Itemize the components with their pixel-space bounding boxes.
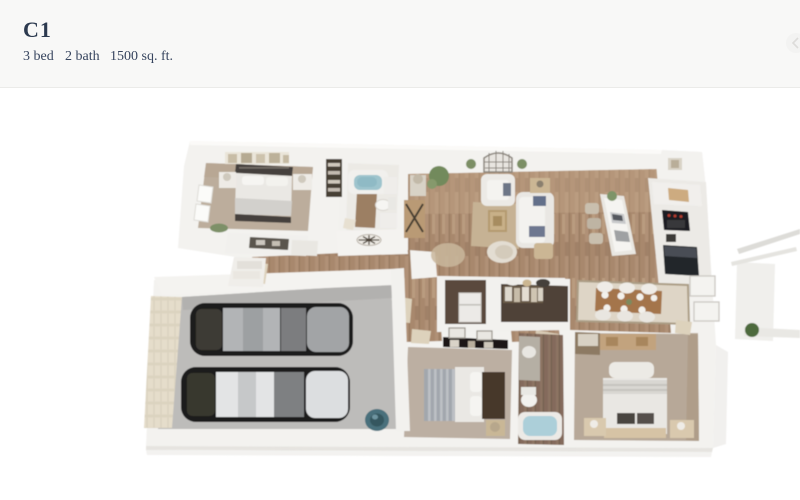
svg-text:3 bed2 bath1500 sq. ft.: 3 bed2 bath1500 sq. ft. bbox=[23, 49, 173, 64]
svg-text:C1: C1 bbox=[23, 17, 52, 42]
